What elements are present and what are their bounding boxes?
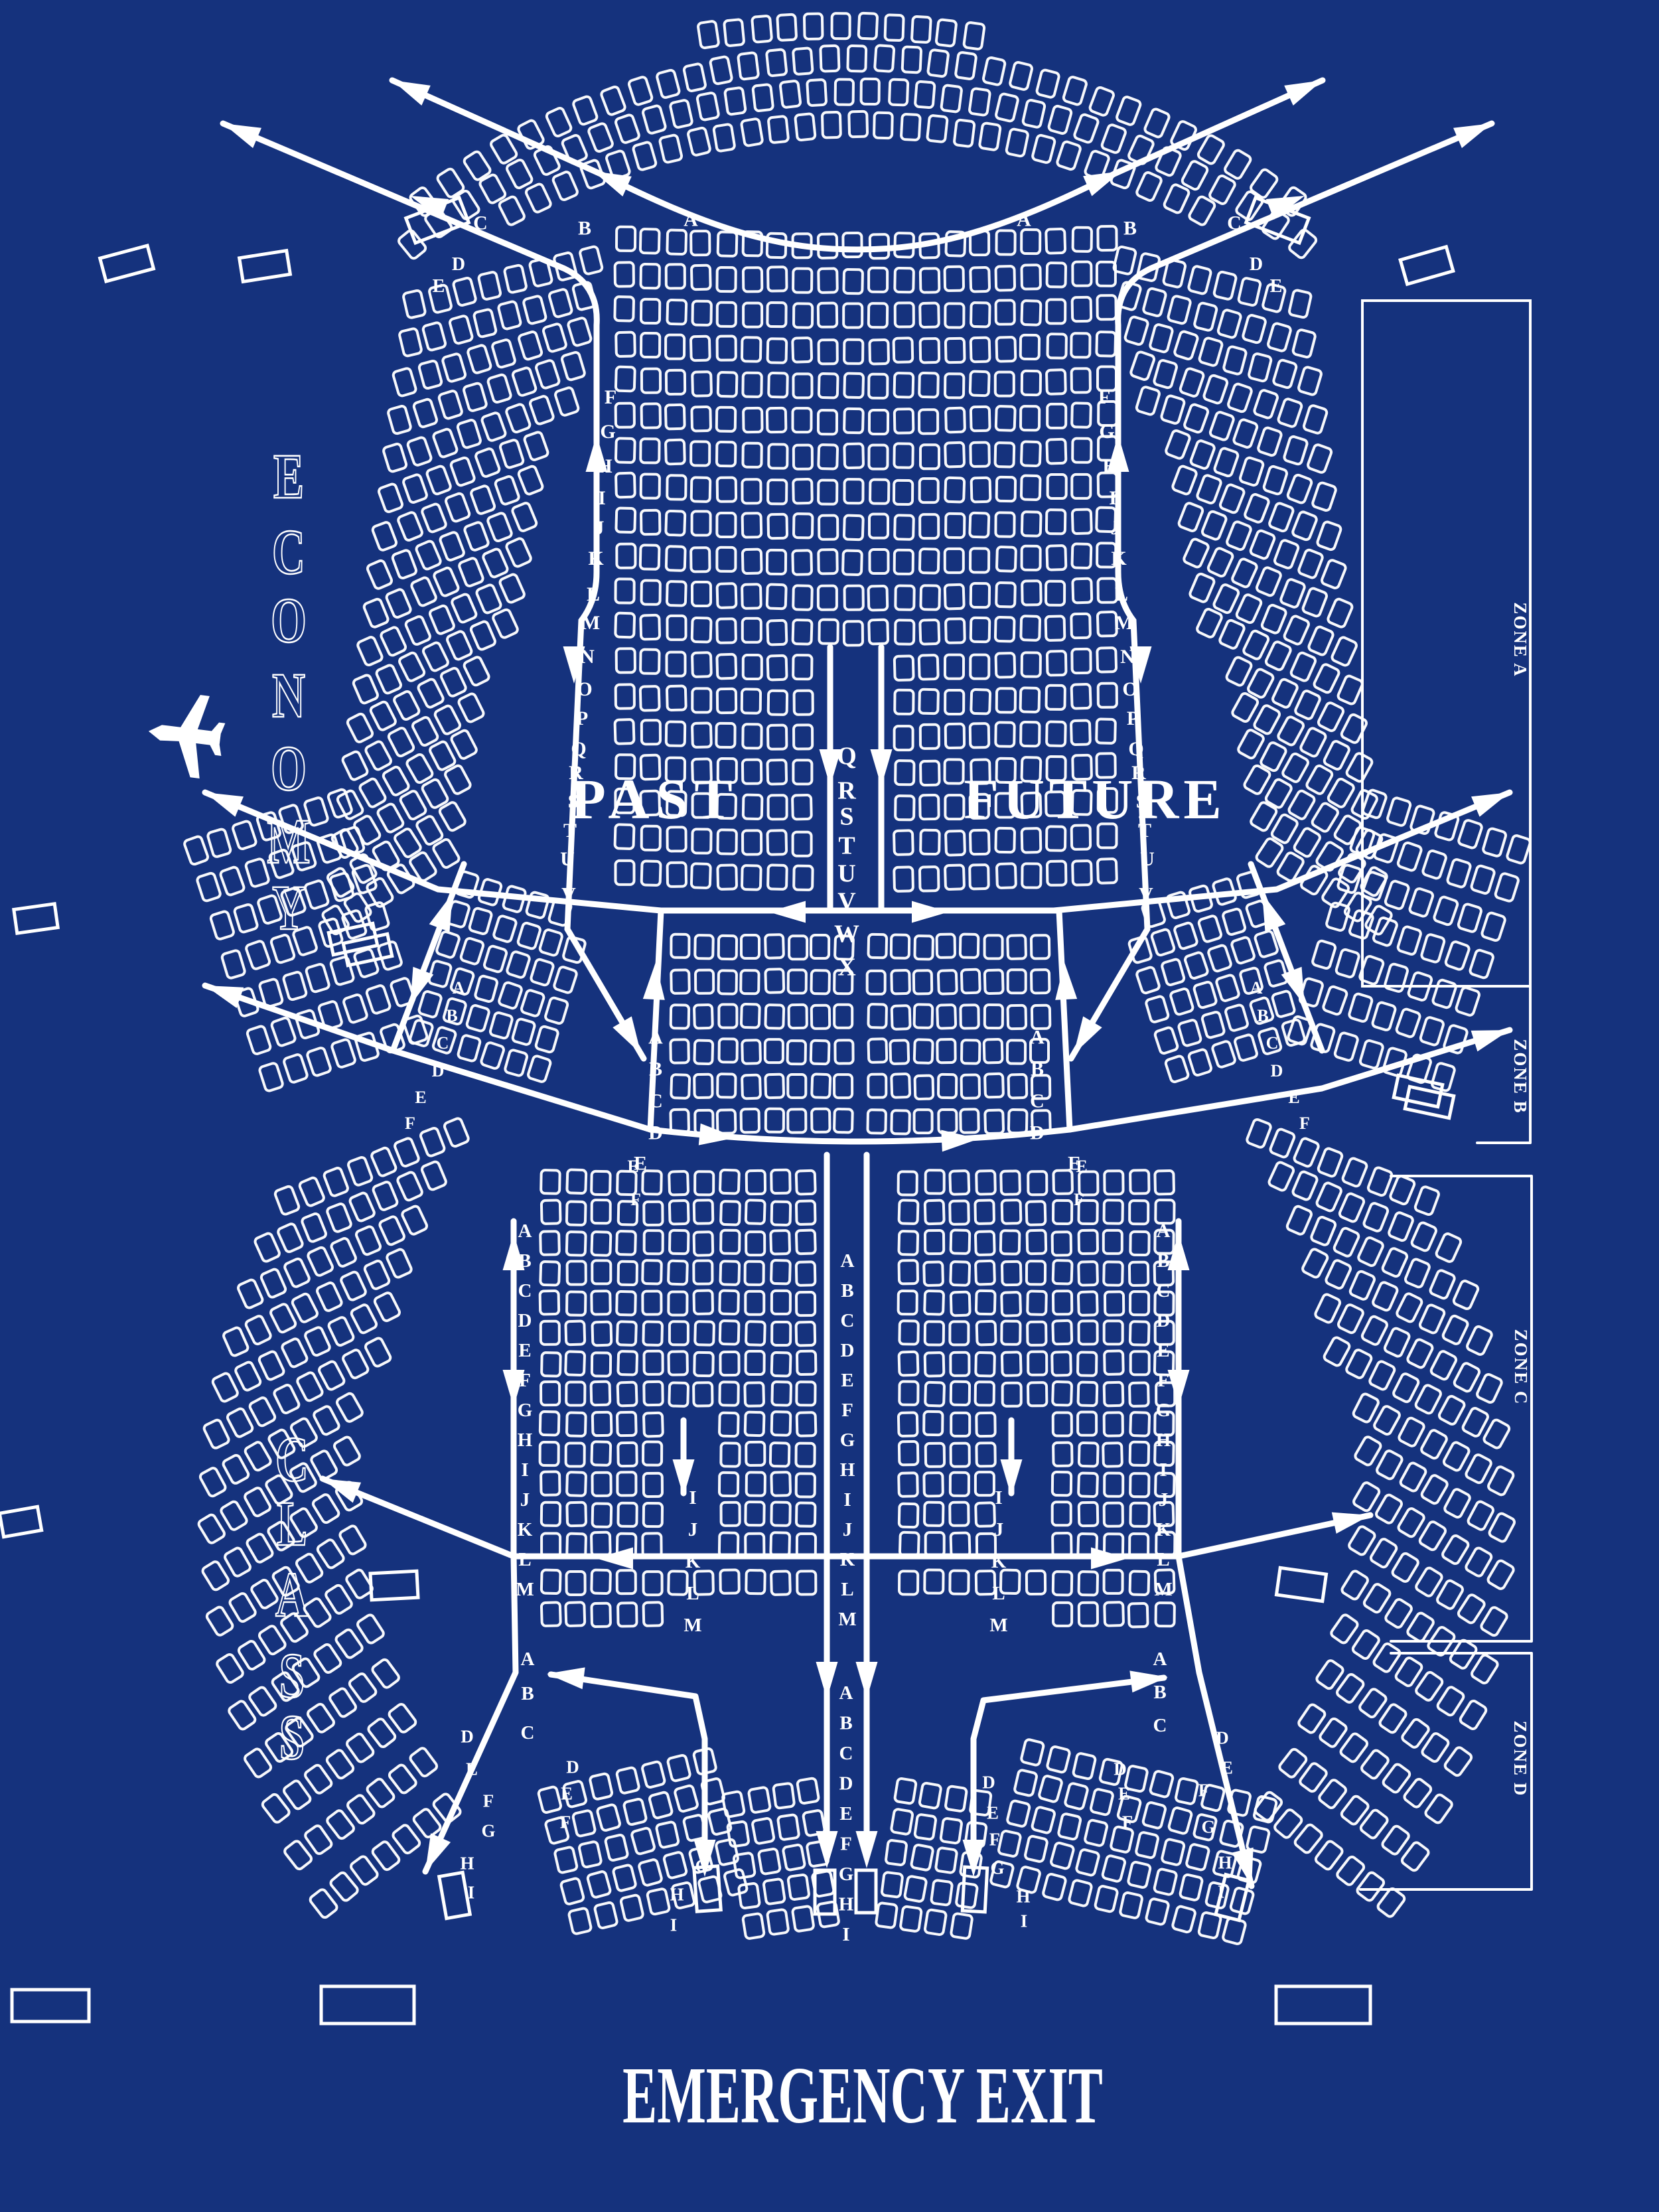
svg-text:D: D (432, 1061, 445, 1080)
svg-text:I: I (670, 1915, 678, 1935)
svg-text:S: S (839, 802, 853, 830)
svg-text:H: H (670, 1884, 684, 1904)
svg-text:E: E (1270, 276, 1283, 297)
svg-text:L: L (1157, 1549, 1169, 1570)
svg-text:G: G (839, 1864, 854, 1885)
svg-text:A: A (648, 1027, 663, 1049)
svg-text:G: G (600, 421, 615, 443)
svg-text:T: T (838, 832, 855, 859)
svg-text:N: N (272, 660, 305, 731)
svg-text:R: R (837, 776, 856, 804)
svg-text:N: N (580, 646, 595, 668)
svg-text:D: D (518, 1310, 532, 1331)
svg-text:B: B (649, 1059, 662, 1080)
svg-text:A: A (521, 1649, 535, 1670)
svg-text:PAST: PAST (571, 767, 739, 831)
svg-text:O: O (271, 733, 307, 804)
svg-text:B: B (578, 218, 591, 240)
svg-text:M: M (989, 1615, 1007, 1636)
svg-text:B: B (1123, 218, 1137, 240)
svg-text:E: E (433, 276, 445, 297)
svg-text:F: F (630, 1190, 641, 1209)
svg-text:C: C (1030, 1090, 1045, 1112)
svg-text:F: F (560, 1812, 571, 1832)
svg-text:C: C (839, 1743, 853, 1764)
svg-text:E: E (518, 1340, 531, 1361)
svg-text:B: B (1157, 1250, 1169, 1272)
svg-text:H: H (518, 1430, 533, 1451)
svg-text:M: M (684, 1615, 701, 1636)
svg-text:E: E (1157, 1340, 1169, 1361)
svg-text:A: A (1157, 1220, 1171, 1242)
svg-text:G: G (840, 1430, 855, 1451)
svg-text:G: G (1099, 421, 1114, 443)
svg-text:B: B (1031, 1059, 1044, 1080)
svg-text:ZONE B: ZONE B (1510, 1039, 1530, 1114)
svg-text:FUTURE: FUTURE (964, 767, 1226, 831)
svg-text:L: L (992, 1583, 1005, 1604)
svg-text:F: F (519, 1370, 531, 1391)
svg-text:K: K (1111, 548, 1127, 569)
svg-text:F: F (1122, 1812, 1133, 1832)
svg-text:M: M (838, 1609, 856, 1630)
svg-text:W: W (834, 920, 859, 948)
svg-text:D: D (566, 1757, 579, 1777)
svg-text:A: A (1250, 978, 1263, 997)
svg-text:L: L (518, 1549, 531, 1570)
svg-text:H: H (1156, 1430, 1171, 1451)
svg-text:A: A (1030, 1027, 1045, 1049)
svg-text:X: X (837, 953, 855, 981)
svg-text:A: A (684, 209, 698, 231)
svg-text:F: F (1198, 1780, 1210, 1800)
svg-text:I: I (1109, 487, 1117, 509)
svg-text:I: I (843, 1489, 851, 1511)
svg-text:U: U (837, 859, 855, 887)
svg-text:J: J (843, 1519, 853, 1540)
svg-text:J: J (688, 1519, 698, 1540)
svg-text:D: D (1216, 1728, 1229, 1747)
svg-text:H: H (840, 1459, 855, 1481)
svg-text:B: B (446, 1006, 457, 1025)
svg-text:F: F (840, 1834, 852, 1855)
svg-text:D: D (841, 1340, 855, 1361)
svg-text:K: K (991, 1551, 1007, 1572)
svg-text:A: A (839, 1682, 853, 1704)
svg-text:D: D (1157, 1310, 1171, 1331)
svg-text:D: D (839, 1773, 853, 1795)
svg-text:ZONE D: ZONE D (1510, 1721, 1530, 1797)
svg-text:J: J (1159, 1489, 1169, 1511)
svg-text:I: I (842, 1924, 849, 1945)
svg-text:O: O (271, 585, 307, 656)
svg-text:F: F (483, 1791, 494, 1810)
svg-text:H: H (1218, 1852, 1232, 1872)
svg-text:C: C (473, 212, 488, 234)
svg-text:F: F (1098, 386, 1110, 408)
svg-text:S: S (279, 1641, 305, 1712)
svg-text:D: D (1271, 1061, 1283, 1080)
svg-text:F: F (1074, 1190, 1084, 1209)
svg-text:A: A (518, 1220, 532, 1242)
svg-text:A: A (1153, 1649, 1167, 1670)
svg-text:Q: Q (571, 738, 586, 760)
svg-text:M: M (516, 1579, 534, 1600)
svg-text:D: D (982, 1772, 995, 1792)
svg-text:H: H (1016, 1886, 1030, 1906)
svg-text:L: L (686, 1583, 699, 1604)
svg-text:H: H (1102, 455, 1118, 477)
svg-text:D: D (1250, 254, 1263, 275)
svg-text:J: J (595, 517, 605, 539)
svg-text:F: F (1299, 1114, 1310, 1133)
svg-text:E: E (273, 441, 304, 512)
svg-text:I: I (598, 487, 606, 509)
svg-text:Y: Y (272, 873, 305, 944)
svg-text:I: I (1218, 1881, 1225, 1901)
svg-text:EMERGENCY EXIT: EMERGENCY EXIT (622, 2051, 1103, 2141)
svg-text:V: V (1139, 884, 1153, 906)
svg-text:D: D (1114, 1759, 1127, 1779)
svg-text:M: M (581, 612, 600, 634)
svg-text:E: E (1221, 1757, 1233, 1777)
svg-text:H: H (597, 455, 612, 477)
svg-text:M: M (1115, 612, 1133, 634)
svg-text:F: F (405, 1114, 415, 1133)
svg-text:H: H (839, 1894, 854, 1915)
svg-text:F: F (1157, 1370, 1169, 1391)
svg-text:E: E (1076, 1157, 1087, 1176)
svg-text:ZONE A: ZONE A (1510, 602, 1530, 677)
svg-text:P: P (576, 707, 588, 729)
svg-text:Q: Q (837, 742, 857, 770)
svg-text:B: B (839, 1713, 852, 1734)
svg-text:A: A (453, 978, 465, 997)
svg-text:G: G (990, 1858, 1004, 1878)
svg-text:M: M (267, 806, 310, 877)
svg-text:G: G (695, 1856, 709, 1876)
svg-text:U: U (1140, 848, 1155, 870)
svg-text:M: M (1154, 1579, 1172, 1600)
svg-text:F: F (989, 1829, 1001, 1849)
svg-text:C: C (648, 1090, 663, 1112)
svg-text:L: L (277, 1489, 307, 1560)
svg-text:I: I (521, 1459, 528, 1481)
svg-text:D: D (648, 1122, 663, 1144)
svg-text:K: K (588, 548, 604, 569)
svg-text:H: H (460, 1853, 474, 1873)
svg-text:A: A (841, 1250, 855, 1272)
svg-text:V: V (561, 884, 576, 906)
svg-text:K: K (685, 1551, 701, 1572)
svg-text:K: K (1156, 1519, 1171, 1540)
svg-text:B: B (518, 1250, 531, 1272)
svg-text:J: J (1111, 517, 1121, 539)
svg-text:C: C (1153, 1715, 1167, 1736)
svg-text:E: E (1118, 1783, 1130, 1803)
svg-text:B: B (521, 1683, 534, 1704)
svg-text:K: K (840, 1549, 855, 1570)
svg-text:C: C (1157, 1280, 1171, 1301)
svg-text:J: J (994, 1519, 1004, 1540)
svg-text:S: S (279, 1702, 305, 1773)
svg-text:G: G (518, 1400, 533, 1421)
svg-text:J: J (520, 1489, 530, 1511)
svg-text:U: U (560, 848, 575, 870)
svg-text:E: E (466, 1759, 478, 1779)
svg-text:E: E (1288, 1088, 1299, 1107)
svg-text:E: E (415, 1088, 426, 1107)
svg-text:E: E (987, 1803, 999, 1822)
svg-text:D: D (1030, 1122, 1045, 1144)
svg-text:C: C (437, 1033, 449, 1053)
svg-text:B: B (1257, 1006, 1268, 1025)
svg-text:Q: Q (1128, 738, 1143, 760)
svg-text:L: L (587, 583, 600, 605)
svg-text:F: F (605, 386, 616, 408)
svg-text:I: I (468, 1882, 475, 1902)
svg-text:A: A (275, 1560, 309, 1631)
svg-text:C: C (275, 1424, 309, 1495)
svg-text:I: I (995, 1487, 1002, 1509)
svg-text:P: P (1127, 707, 1139, 729)
svg-text:I: I (1021, 1911, 1028, 1931)
svg-text:C: C (841, 1310, 855, 1331)
svg-text:E: E (627, 1157, 638, 1176)
svg-text:F: F (841, 1400, 853, 1421)
svg-text:G: G (1156, 1400, 1171, 1421)
svg-text:C: C (1266, 1033, 1279, 1053)
svg-text:ZONE C: ZONE C (1511, 1329, 1531, 1406)
svg-text:C: C (518, 1280, 532, 1301)
svg-text:O: O (577, 678, 592, 700)
svg-text:D: D (452, 254, 465, 275)
svg-text:V: V (837, 887, 856, 915)
svg-text:C: C (272, 517, 305, 588)
svg-text:B: B (1153, 1682, 1166, 1703)
svg-text:K: K (518, 1519, 533, 1540)
svg-text:E: E (841, 1370, 853, 1391)
svg-text:D: D (461, 1726, 474, 1746)
svg-text:C: C (1227, 212, 1242, 234)
svg-text:B: B (841, 1280, 853, 1301)
svg-text:L: L (841, 1579, 853, 1600)
svg-text:N: N (1120, 646, 1135, 668)
svg-text:I: I (1159, 1459, 1167, 1481)
svg-text:O: O (1122, 678, 1137, 700)
svg-text:G: G (481, 1820, 495, 1840)
svg-text:E: E (839, 1803, 852, 1824)
svg-text:I: I (689, 1487, 696, 1509)
svg-text:E: E (561, 1783, 573, 1803)
svg-text:C: C (521, 1722, 535, 1743)
svg-text:A: A (1017, 209, 1031, 231)
svg-text:L: L (1115, 583, 1128, 605)
svg-text:G: G (1201, 1816, 1215, 1836)
